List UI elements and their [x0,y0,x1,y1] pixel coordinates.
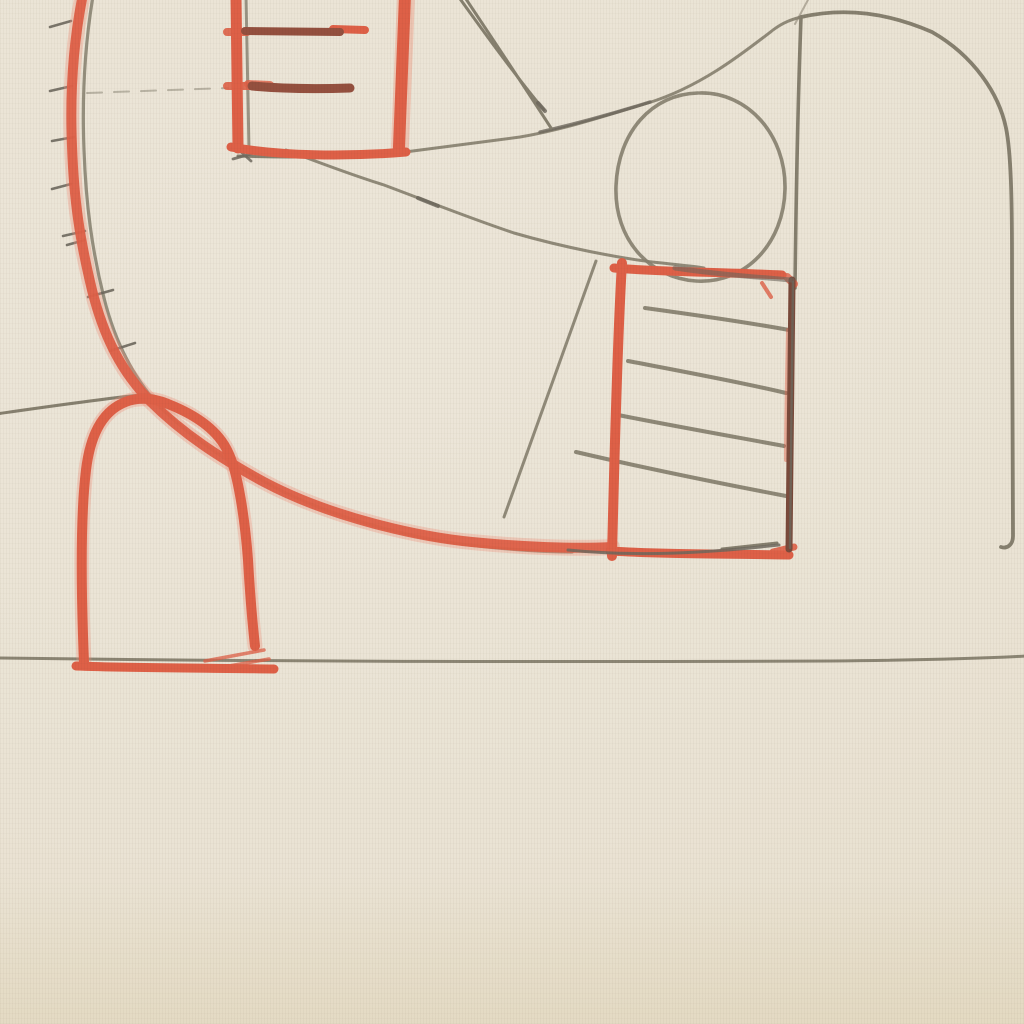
long-lower-curve [286,150,704,268]
double-diagonal-stroke-1 [458,0,544,110]
big-red-arc-soft [71,0,612,548]
double-diagonal-stroke-2 [464,0,551,128]
paper-specks [22,3,858,910]
orange-speck-2 [576,526,581,531]
top-ladder-rung-2 [252,86,350,89]
big-red-arc [71,0,612,548]
middle-ladder-left-edge [612,263,622,556]
top-ladder-inner-pencil [246,0,249,150]
orange-speck-1 [588,127,592,131]
orange-speck-3 [361,780,366,785]
faint-smudge [544,791,562,799]
dark-speck-4 [822,246,825,249]
tall-arch-left-leg [795,17,801,288]
bottom-arch [82,399,255,662]
top-ladder-right-edge [399,0,405,147]
centre-diagonal-line [504,261,596,517]
horizon-line [0,656,1024,662]
dark-speck-2 [443,826,446,829]
dark-speck-1 [22,295,25,298]
red-crayon [71,0,794,669]
long-lower-curve-dark-segment [418,198,438,206]
dark-speck-3 [455,907,458,910]
top-ladder-left-edge [236,0,238,148]
arc-parallel-pencil-line [83,0,572,552]
pencil-overlays [568,268,793,554]
long-upper-curve [405,17,801,152]
middle-ladder-red-droplet [762,283,771,297]
pencil-lines [0,0,1024,662]
top-ladder-bottom-edge [231,147,406,155]
bottom-arch-base-line [76,666,274,669]
abstract-drawing [0,0,1024,1024]
artwork-canvas [0,0,1024,1024]
top-ladder-rung-1 [245,31,340,32]
middle-ladder-rung-1 [645,308,789,330]
middle-ladder-rung-4 [576,452,786,496]
middle-ladder-rung-3 [613,414,784,446]
cyan-speck [853,3,858,8]
dashed-guide-line [87,88,228,93]
yellow-speck [31,167,35,171]
middle-ladder-rung-2 [628,361,786,393]
tall-arch-curve [801,12,1013,547]
dark-red-crayon [245,31,792,549]
bottom-arch-soft [82,399,255,662]
pencil-oval [616,93,785,281]
